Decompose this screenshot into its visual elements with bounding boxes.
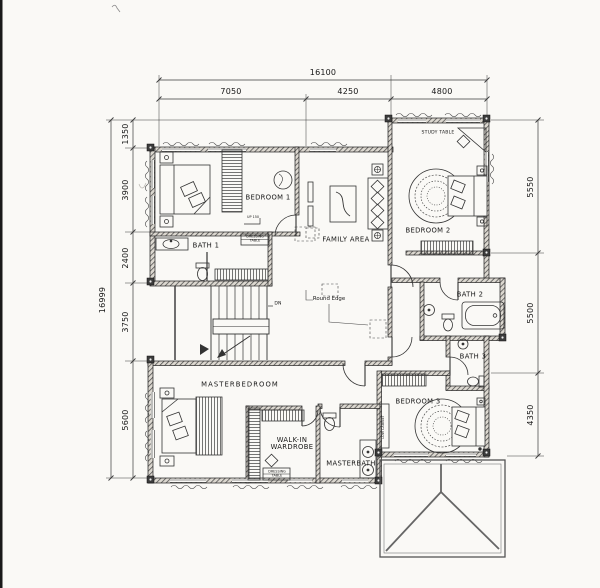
dim-right-3: 4350 [527,404,535,425]
bedroom2-furniture [409,128,487,254]
round-edge-callout [295,227,386,338]
annotation-round-edge: Round Edge [313,297,345,303]
dim-top-1: 7050 [220,88,241,96]
dim-left-4: 3750 [122,311,130,332]
floorplan-drawing [0,0,600,588]
dim-left-5: 5600 [122,409,130,430]
corner-study-table [458,128,486,152]
room-label-bath2: BATH 2 [457,291,484,298]
room-label-masterbath: MASTERBATH [326,460,376,467]
annotation-low-cabinet: LOW CABINET [382,415,386,439]
floorplan-page: 16100 7050 4250 4800 16999 1350 3900 240… [0,0,600,588]
dim-top-2: 4250 [337,88,358,96]
room-label-bath3: BATH 3 [460,353,487,360]
bath2-fixtures [424,302,505,331]
dim-right-2: 5500 [527,302,535,323]
roof-outline [380,460,505,557]
bedroom1-furniture [160,150,292,227]
room-label-bedroom2: BEDROOM 2 [405,227,450,234]
dim-top-3: 4800 [431,88,452,96]
dim-left-3: 2400 [122,247,130,268]
room-label-walkin-wardrobe: WALK-IN WARDROBE [267,437,317,451]
annotation-dressing-table-1: DRESSING TABLE [244,235,266,242]
dim-left-2: 3900 [122,179,130,200]
bath3-fixtures [458,339,484,387]
dim-left-1: 1350 [122,123,130,144]
dim-right-1: 5550 [527,176,535,197]
dim-top-total: 16100 [310,69,336,77]
room-label-bedroom3: BEDROOM 3 [395,398,440,405]
annotation-study-table: STUDY TABLE [421,132,454,137]
scan-edge-artifacts [0,0,146,588]
room-label-family-area: FAMILY AREA [322,236,369,243]
annotation-dn: DN [274,303,281,308]
annotation-up: UP 150 [247,216,259,220]
masterbath-fixtures [323,413,376,478]
room-label-bath1: BATH 1 [193,242,220,249]
room-label-masterbedroom: MASTERBEDROOM [201,381,279,388]
room-label-bedroom1: BEDROOM 1 [245,194,290,201]
annotation-dressing-table-2: DRESSING TABLE [266,470,288,477]
family-area-furniture [306,164,388,241]
dim-left-total: 16999 [99,287,107,313]
masterbedroom-furniture [160,388,222,466]
speaker-icon [372,230,383,241]
speaker-icon [372,164,383,175]
